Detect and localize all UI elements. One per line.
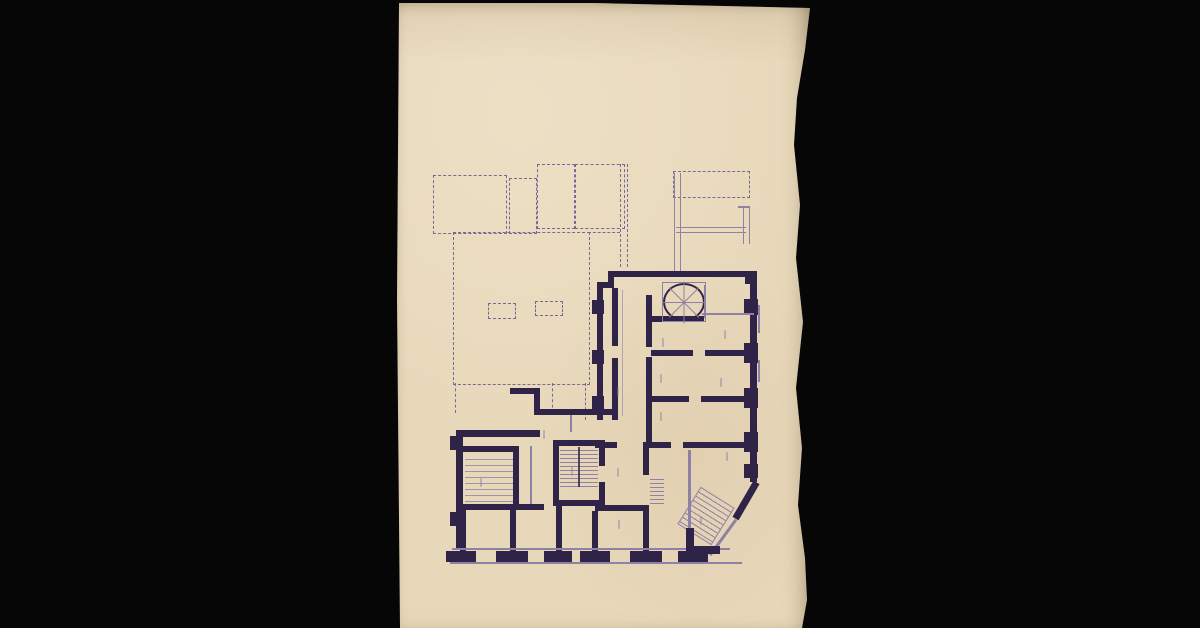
dashed-room-outline: [537, 164, 575, 229]
wall-pilaster: [744, 432, 758, 452]
dimension-label: [618, 520, 620, 529]
dashed-room-outline: [509, 178, 537, 234]
garage-wall: [513, 446, 519, 508]
stair-block-wall: [555, 500, 605, 506]
light-wall-line: [570, 415, 572, 432]
garage-wall: [456, 504, 544, 510]
window-sill-line: [758, 305, 760, 333]
dashed-wall-line: [588, 232, 620, 233]
dimension-label: [543, 430, 545, 439]
light-wall-line: [676, 227, 746, 233]
interior-wall: [643, 442, 649, 475]
stair-divider: [578, 447, 580, 487]
dimension-label: [480, 478, 482, 487]
courtyard-pier-outline: [535, 301, 563, 316]
spiral-staircase: [662, 282, 706, 322]
dashed-wall-line: [627, 164, 628, 267]
exterior-wall: [608, 271, 757, 277]
interior-wall: [683, 442, 745, 448]
wall-pilaster: [592, 350, 604, 364]
interior-wall: [534, 409, 616, 415]
footing-pier: [544, 551, 572, 562]
dimension-label: [724, 330, 726, 339]
courtyard-pier-outline: [488, 303, 516, 319]
light-wall-line: [450, 562, 742, 564]
light-wall-line: [702, 313, 754, 315]
footing-pier: [496, 551, 528, 562]
wall-pilaster: [450, 436, 456, 450]
chamfer-wall: [732, 481, 759, 521]
pier-stem: [556, 506, 562, 552]
dimension-label: [571, 467, 573, 476]
dimension-label: [700, 516, 702, 525]
dashed-room-outline: [433, 175, 507, 234]
courtyard-dashed-outline: [453, 232, 590, 385]
dashed-room-outline: [673, 171, 750, 198]
light-wall-line: [704, 285, 706, 318]
wall-pilaster: [592, 396, 604, 410]
pier-stem: [460, 510, 466, 552]
interior-wall: [651, 396, 689, 402]
dashed-wall-line: [455, 383, 456, 413]
dimension-label: [726, 452, 728, 461]
canvas-background: PIANO TERRA 1:100: [0, 0, 1200, 628]
wall-pilaster: [744, 464, 758, 478]
plan-scale: 1:100: [956, 88, 1012, 104]
light-wall-line: [674, 173, 681, 273]
floor-plan: [0, 0, 1200, 628]
window-sill-line: [758, 360, 760, 382]
dimension-label: [660, 412, 662, 421]
stair-block-wall: [553, 440, 605, 446]
pier-stem: [592, 511, 598, 552]
stair-block-wall: [553, 440, 559, 506]
pier-stem: [510, 510, 516, 552]
garage-wall: [461, 446, 519, 452]
interior-wall: [701, 396, 751, 402]
light-wall-line: [530, 446, 532, 504]
stair-block-wall: [599, 440, 605, 466]
dashed-wall-line: [620, 164, 621, 267]
interior-wall: [643, 505, 649, 553]
interior-wall: [612, 288, 618, 346]
dimension-label: [720, 378, 722, 387]
light-wall-line: [743, 206, 750, 244]
corridor-staircase: [650, 476, 664, 506]
dimension-label: [660, 374, 662, 383]
interior-wall: [705, 350, 751, 356]
dimension-label: [662, 338, 664, 347]
wall-pilaster: [450, 512, 456, 526]
garage-hatching: [465, 454, 513, 502]
wall-corner-block: [686, 528, 694, 552]
plan-title: PIANO TERRA: [926, 60, 1105, 78]
footing-pier: [580, 551, 610, 562]
wall-pilaster: [592, 300, 604, 314]
light-wall-line: [738, 206, 750, 208]
dashed-room-outline: [575, 164, 625, 229]
exterior-wall: [456, 430, 540, 437]
paper-sheet: PIANO TERRA 1:100: [393, 0, 813, 628]
wall-corner-block: [745, 276, 757, 284]
interior-wall: [651, 350, 693, 356]
light-wall-line: [622, 290, 623, 416]
footing-pier: [630, 551, 662, 562]
footing-pier: [446, 551, 476, 562]
dimension-label: [617, 468, 619, 477]
dimension-label: [617, 387, 619, 396]
